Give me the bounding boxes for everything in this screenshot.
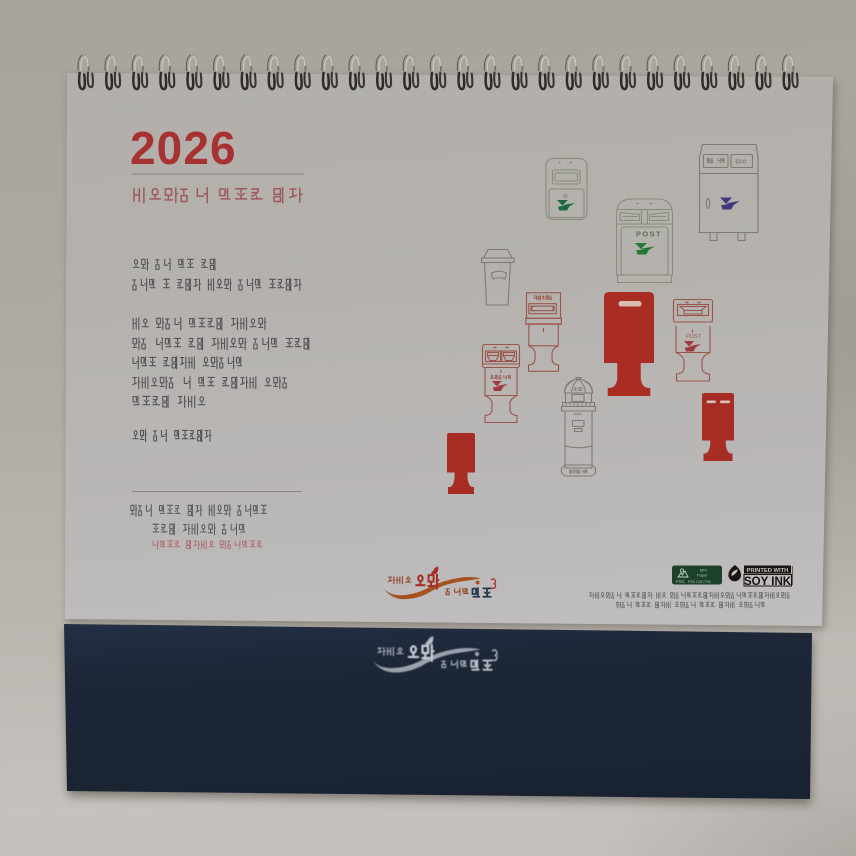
svg-text:POST: POST <box>686 334 702 340</box>
svg-text:FSC C017792: FSC C017792 <box>688 580 711 584</box>
svg-text:PRINTED WITH: PRINTED WITH <box>747 568 789 574</box>
svg-text:ECO: ECO <box>736 160 747 166</box>
svg-text:POST: POST <box>636 230 662 239</box>
svg-text:Paper: Paper <box>697 573 708 578</box>
svg-text:FSC: FSC <box>676 579 686 584</box>
svg-text:2026: 2026 <box>130 122 237 174</box>
